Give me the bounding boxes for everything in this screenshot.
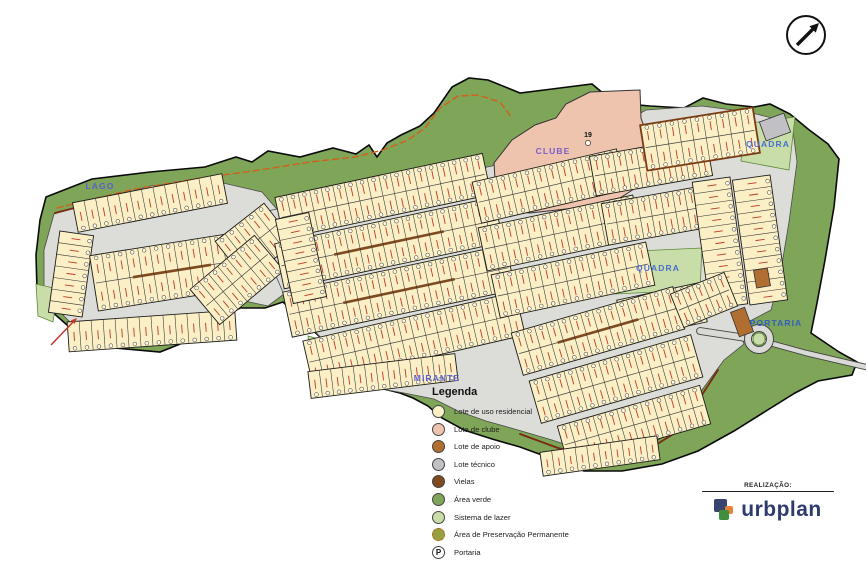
credits-divider: [702, 491, 834, 492]
legend-item-area-verde: Área verde: [432, 493, 582, 506]
legend-item-label: Vielas: [454, 477, 475, 486]
realizacao-label: REALIZAÇÃO:: [698, 482, 838, 489]
legend-item-label: Sistema de lazer: [454, 513, 511, 522]
app-swatch-icon: [432, 528, 445, 541]
area-verde-swatch-icon: [432, 493, 445, 506]
tecnico-swatch-icon: [432, 458, 445, 471]
clube-lot-marker: [585, 140, 590, 145]
legend-item-label: Área de Preservação Permanente: [454, 530, 569, 539]
vielas-swatch-icon: [432, 475, 445, 488]
legend-item-app: Área de Preservação Permanente: [432, 528, 582, 541]
legend-item-label: Lote de uso residencial: [454, 407, 532, 416]
legend-item-portaria: PPortaria: [432, 546, 582, 559]
legend-item-label: Área verde: [454, 495, 491, 504]
map-label-portaria: PORTARIA: [750, 318, 803, 328]
portaria-swatch-icon: P: [432, 546, 445, 559]
roundabout-island: [753, 333, 765, 345]
legend-item-sistema-lazer: Sistema de lazer: [432, 511, 582, 524]
legend-item-apoio: Lote de apoio: [432, 440, 582, 453]
legend-item-label: Lote técnico: [454, 460, 495, 469]
clube-lot-number: 19: [584, 132, 592, 139]
urbplan-logo-wordmark: urbplan: [741, 498, 822, 522]
map-label-clube: CLUBE: [536, 146, 571, 156]
credits-block: REALIZAÇÃO: urbplan: [698, 482, 838, 522]
site-plan-page: LAGOCLUBEQUADRAQUADRAPORTARIAMIRANTE19 L…: [0, 0, 866, 561]
map-label-lago: LAGO: [86, 181, 115, 191]
special-lot: [754, 268, 771, 288]
legend: Legenda Lote de uso residencialLote de c…: [432, 386, 582, 561]
residencial-swatch-icon: [432, 405, 445, 418]
legend-item-tecnico: Lote técnico: [432, 458, 582, 471]
apoio-swatch-icon: [432, 440, 445, 453]
legend-item-label: Lote de apoio: [454, 442, 500, 451]
north-arrow-icon: [787, 16, 825, 54]
legend-item-label: Portaria: [454, 548, 481, 557]
map-label-mirante: MIRANTE: [414, 373, 460, 383]
map-label-quadra-mid: QUADRA: [636, 263, 680, 273]
legend-item-residencial: Lote de uso residencial: [432, 405, 582, 418]
legend-title: Legenda: [432, 386, 582, 398]
legend-item-clube: Lote de clube: [432, 423, 582, 436]
urbplan-logo-icon: [714, 498, 736, 522]
legend-item-vielas: Vielas: [432, 475, 582, 488]
clube-swatch-icon: [432, 423, 445, 436]
legend-item-label: Lote de clube: [454, 425, 500, 434]
map-label-quadra-top: QUADRA: [746, 139, 790, 149]
sistema-lazer-swatch-icon: [432, 511, 445, 524]
